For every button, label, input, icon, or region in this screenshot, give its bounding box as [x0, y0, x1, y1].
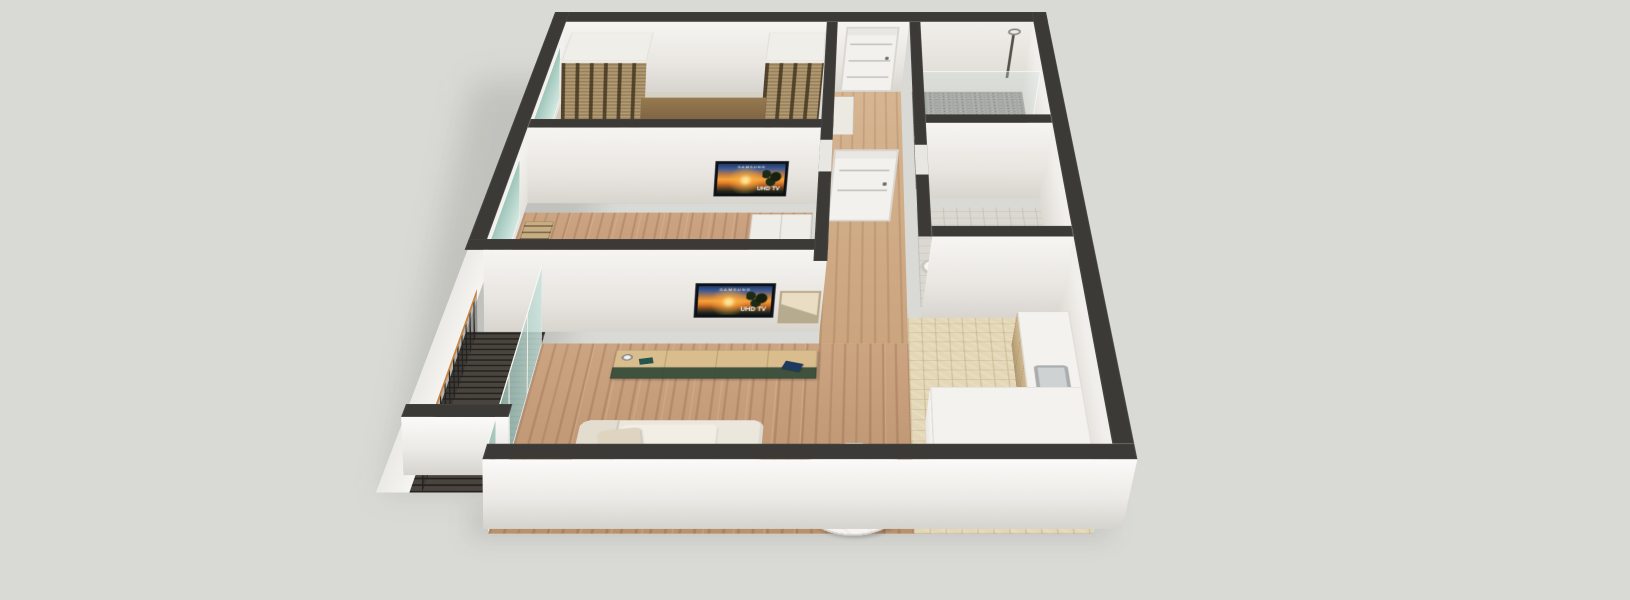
wall-living-divider [465, 239, 829, 250]
wall-shower-divider [926, 114, 1053, 123]
leaning-art-frame [777, 291, 821, 323]
wall-north [551, 12, 1048, 22]
bedroom2-north-wall-face: SAMSUNG UHD TV [527, 128, 833, 204]
tv-uhd-label: UHD TV [757, 187, 780, 192]
wardrobe-west-top [562, 33, 654, 61]
tv-living: SAMSUNG UHD TV [694, 283, 777, 317]
tv-uhd-label: UHD TV [740, 307, 766, 313]
apartment-floorplan: SAMSUNG UHD TV SAMSUNG UHD TV [385, 22, 1120, 563]
south-facade [482, 459, 1137, 529]
tv-bedroom2-screen: SAMSUNG UHD TV [716, 164, 785, 194]
hallway-interior-door [827, 149, 899, 221]
tv-trees-art [746, 291, 769, 307]
tv-living-screen: SAMSUNG UHD TV [697, 286, 772, 315]
wardrobe-west-front [561, 60, 647, 120]
interior-door-handle [882, 182, 887, 186]
shower-head-icon [1008, 29, 1022, 36]
render-canvas: SAMSUNG UHD TV SAMSUNG UHD TV [0, 0, 1630, 600]
wardrobe-east-top [766, 33, 826, 61]
entrance-door [840, 27, 900, 92]
wardrobe-east-front [761, 60, 824, 120]
wall-kitchen-north [932, 226, 1074, 237]
tv-trees-art [761, 169, 782, 186]
tv-brand-text: SAMSUNG [699, 287, 773, 292]
wc-south-wall-face [921, 237, 1074, 318]
entry-north-wall-face [831, 22, 910, 92]
tv-bedroom2: SAMSUNG UHD TV [713, 161, 789, 196]
tv-brand-text: SAMSUNG [718, 165, 786, 169]
camera-projection: SAMSUNG UHD TV SAMSUNG UHD TV [0, 0, 1630, 600]
shower-divider-wall-face [916, 123, 1052, 199]
wall-bedroom-divider [528, 119, 834, 128]
wall-south [482, 444, 1137, 460]
